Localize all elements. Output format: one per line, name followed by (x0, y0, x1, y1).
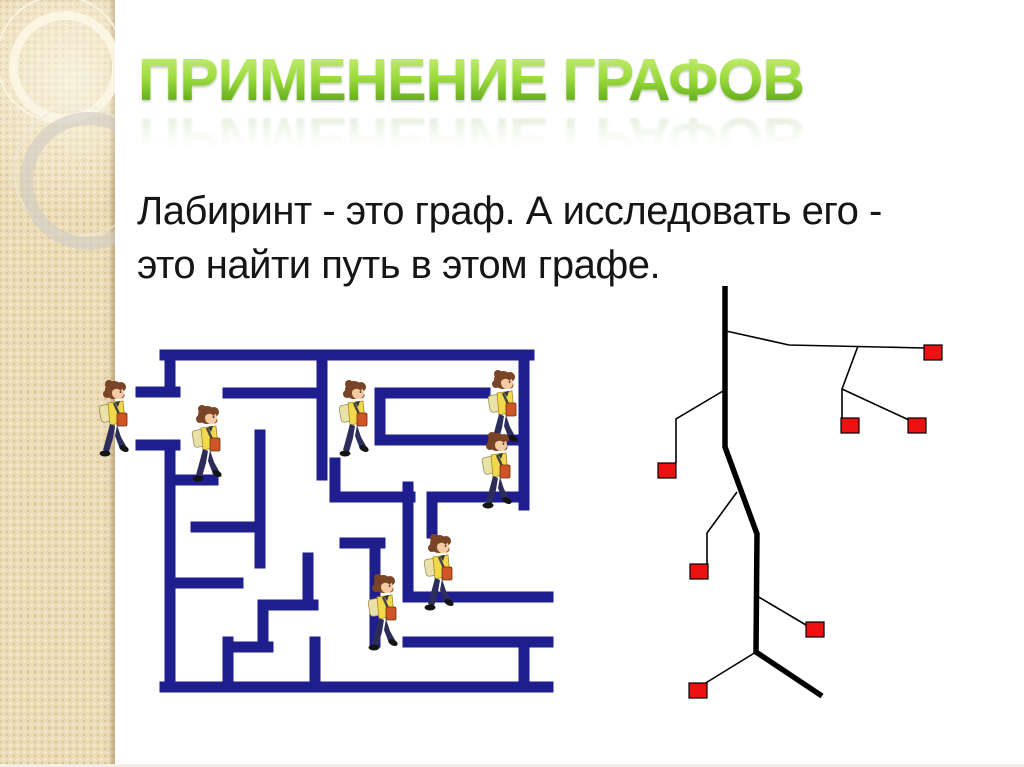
tree-edge (707, 492, 737, 564)
maze-wall-segment (403, 637, 554, 648)
tree-edge (757, 596, 806, 625)
graph-node (841, 418, 859, 433)
graph-node (908, 418, 926, 433)
maze-wall-segment (223, 388, 328, 399)
maze-wall-segment (160, 682, 554, 693)
maze-wall-segment (519, 350, 530, 511)
maze-wall-segment (403, 592, 554, 603)
graph-node (924, 345, 942, 360)
tree-edge (704, 652, 756, 684)
graph-node (658, 463, 676, 478)
maze-wall-segment (303, 553, 314, 611)
maze-wall-segment (191, 522, 266, 533)
graph-node (806, 622, 824, 637)
maze-wall-segment (255, 430, 266, 569)
maze-wall-segment (165, 475, 219, 486)
presentation-slide: ПРИМЕНЕНИЕ ГРАФОВ ПРИМЕНЕНИЕ ГРАФОВ Лаби… (0, 0, 1024, 767)
maze-wall-segment (317, 350, 328, 481)
figures-canvas (0, 0, 1024, 767)
maze-wall-segment (403, 482, 414, 603)
child-figure (99, 380, 130, 457)
maze-wall-segment (330, 458, 341, 503)
tree-edge (676, 391, 723, 463)
tree-graph-figure (658, 286, 942, 698)
child-figure (339, 380, 370, 457)
child-figure (192, 405, 223, 482)
maze-wall-segment (310, 637, 321, 693)
graph-node (690, 564, 708, 579)
maze-wall-segment (160, 350, 535, 361)
maze-wall-segment (427, 492, 438, 539)
tree-edge (842, 346, 858, 419)
graph-node (689, 683, 707, 698)
maze-wall-segment (165, 578, 244, 589)
maze-wall-segment (136, 387, 181, 398)
tree-edge (842, 389, 909, 420)
maze-wall-segment (375, 388, 491, 399)
tree-edge (726, 331, 924, 348)
